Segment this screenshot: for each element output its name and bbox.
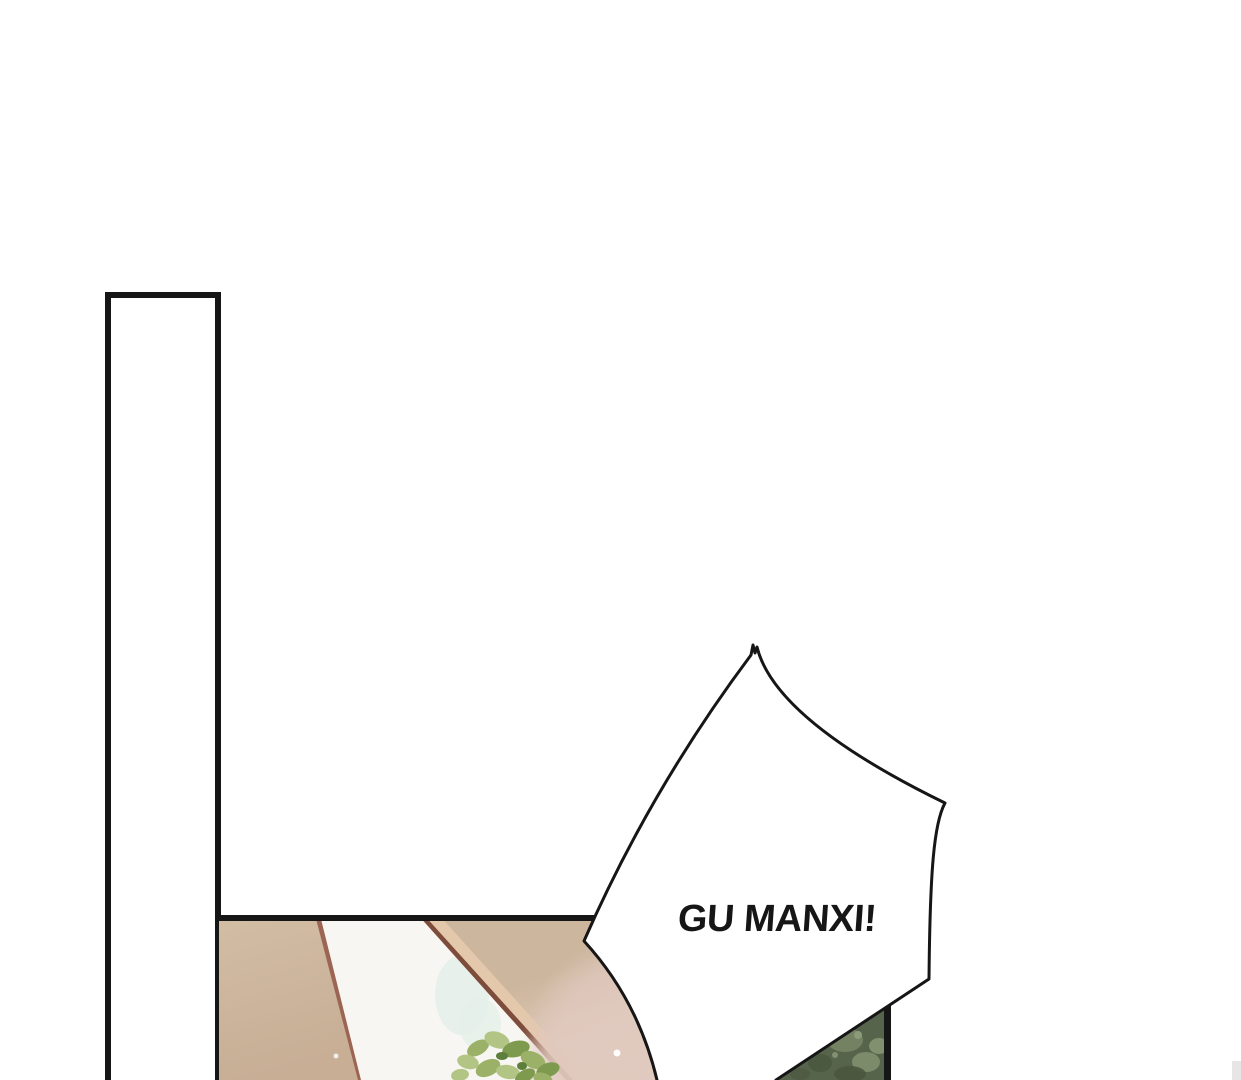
bottom-panel-top-border xyxy=(215,915,604,921)
comic-art-canvas xyxy=(0,0,1241,1080)
highlight-dot xyxy=(334,1054,339,1059)
next-panel-right-border xyxy=(884,1005,891,1080)
comic-page: GU MANXI! xyxy=(0,0,1241,1080)
empty-panel-frame xyxy=(108,295,218,1080)
scrollbar-thumb[interactable] xyxy=(1232,1061,1241,1080)
highlight-dot xyxy=(614,1050,621,1057)
speech-bubble-text: GU MANXI! xyxy=(669,896,884,942)
